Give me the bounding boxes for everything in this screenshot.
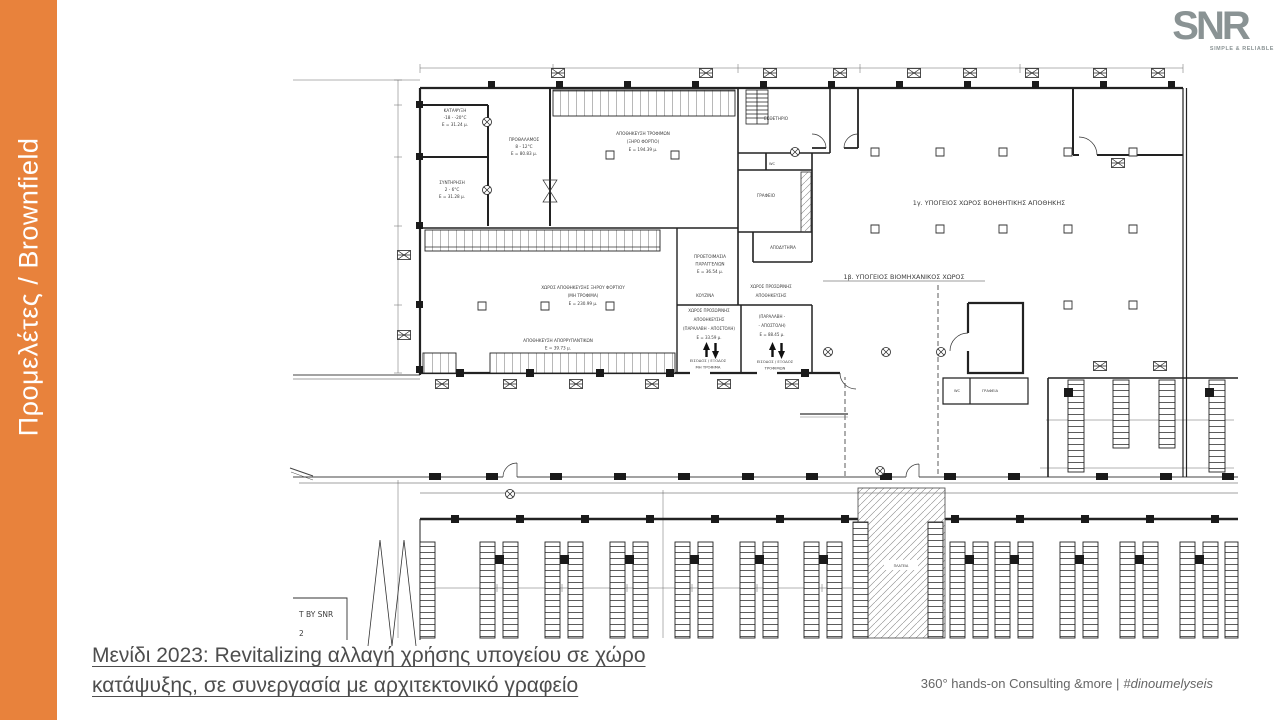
plan-label-eisodos-mi-trofima: ΕΙΣΟΔΟΣ / ΕΞΟΔΟΣ: [690, 358, 727, 363]
plan-label-grafeia: ΓΡΑΦΕΙΑ: [982, 388, 999, 393]
logo-tagline: SIMPLE & RELIABLE: [1210, 46, 1274, 52]
slide: Προμελέτες / Brownfield SNR SIMPLE & REL…: [0, 0, 1280, 720]
plan-label-apothikefsi-trofimon: (ΞΗΡΟ ΦΟΡΤΙΟ): [627, 139, 660, 144]
caption-line-2: κατάψυξης, σε συνεργασία με αρχιτεκτονικ…: [92, 672, 772, 700]
plan-label-apothikefsi-trofimon: ΑΠΟΘΗΚΕΥΣΗ ΤΡΟΦΙΜΩΝ: [616, 131, 670, 136]
plan-label-paralavi-apostoli-b: - ΑΠΟΣΤΟΛΗ): [758, 323, 785, 328]
snr-logo: SNR SIMPLE & RELIABLE: [1146, 4, 1278, 58]
plan-hatched-wall: [801, 172, 811, 232]
plan-label-xiro-fortio: Ε = 230.99 μ.: [569, 301, 598, 306]
plan-label-apodytiria: ΑΠΟΔΥΤΗΡΙΑ: [770, 245, 796, 250]
plan-label-grafeio: ΓΡΑΦΕΙΟ: [757, 193, 776, 198]
plan-label-aporripantika: ΑΠΟΘΗΚΕΥΣΗ ΑΠΟΡΡΥΠΑΝΤΙΚΩΝ: [523, 338, 593, 343]
plan-label-xoros-prosorinis-b: ΧΩΡΟΣ ΠΡΟΣΩΡΙΝΗΣ: [750, 284, 792, 289]
plan-label-eisodos-trofimon: ΕΙΣΟΔΟΣ / ΕΞΟΔΟΣ: [757, 359, 794, 364]
plan-label-ektheterio: ΕΚΘΕΤΗΡΙΟ: [764, 116, 789, 121]
plan-label-xoros-prosorinis-b: ΑΠΟΘΗΚΕΥΣΗΣ: [756, 293, 787, 298]
floor-plan: ΚΑΤΑΨΥΞΗ-18 - -20°CΕ = 31.24 μ.ΣΥΝΤΗΡΗΣΗ…: [285, 55, 1240, 655]
plan-label-stamp-by-snr: T BY SNR: [298, 610, 333, 619]
plan-label-paralavi-apostoli-b: (ΠΑΡΑΛΑΒΗ -: [759, 314, 786, 319]
plan-label-eisodos-trofimon: ΤΡΟΦΙΜΩΝ: [764, 366, 786, 371]
plan-label-apothikefsi-trofimon: Ε = 194.39 μ.: [629, 147, 658, 152]
plan-label-xiro-fortio: (ΜΗ ΤΡΟΦΙΜΑ): [568, 293, 599, 298]
plan-label-katapsixi: Ε = 31.24 μ.: [442, 122, 468, 127]
plan-vertical-racks: [420, 380, 1238, 638]
plan-label-wc-lower: WC: [954, 389, 961, 393]
plan-label-xoros-prosorinis-a: (ΠΑΡΑΛΑΒΗ - ΑΠΟΣΤΟΛΗ): [683, 326, 735, 331]
caption-line-1: Μενίδι 2023: Revitalizing αλλαγή χρήσης …: [92, 642, 772, 670]
plan-label-sintirisi: Ε = 31.28 μ.: [439, 194, 465, 199]
plan-label-xoros-prosorinis-a: Ε = 33.59 μ.: [697, 335, 722, 340]
plan-label-xoros-prosorinis-a: ΑΠΟΘΗΚΕΥΣΗΣ: [694, 317, 725, 322]
sidebar-label: Προμελέτες / Brownfield: [13, 138, 44, 437]
plan-label-stamp-by-snr: 2: [299, 629, 304, 638]
plan-label-katapsixi: ΚΑΤΑΨΥΞΗ: [444, 108, 467, 113]
plan-label-proetoimasia: Ε = 36.54 μ.: [697, 269, 723, 274]
plan-label-xiro-fortio: ΧΩΡΟΣ ΑΠΟΘΗΚΕΥΣΗΣ ΞΗΡΟΥ ΦΟΡΤΙΟΥ: [541, 285, 625, 290]
floor-plan-drawing: ΚΑΤΑΨΥΞΗ-18 - -20°CΕ = 31.24 μ.ΣΥΝΤΗΡΗΣΗ…: [285, 55, 1240, 655]
plan-label-zone-1g: 1γ. ΥΠΟΓΕΙΟΣ ΧΩΡΟΣ ΒΟΗΘΗΤΙΚΗΣ ΑΠΟΘΗΚΗΣ: [913, 199, 1065, 207]
plan-label-prothalamos: ΠΡΟΘΑΛΑΜΟΣ: [509, 137, 540, 142]
plan-wall-openings: [503, 369, 919, 481]
plan-label-eisodos-mi-trofima: ΜΗ ΤΡΟΦΙΜΑ: [696, 365, 721, 370]
plan-tiny-note: [800, 414, 848, 417]
slide-caption: Μενίδι 2023: Revitalizing αλλαγή χρήσης …: [92, 642, 772, 702]
plan-label-sintirisi: ΣΥΝΤΗΡΗΣΗ: [439, 180, 465, 185]
plan-label-katapsixi: -18 - -20°C: [444, 115, 467, 120]
plan-ramp: [368, 540, 416, 646]
plan-label-sintirisi: 2 - 6°C: [445, 187, 460, 192]
plan-label-zone-1b: 1β. ΥΠΟΓΕΙΟΣ ΒΙΟΜΗΧΑΝΙΚΟΣ ΧΩΡΟΣ: [843, 273, 964, 281]
plan-label-prothalamos: 8 - 12°C: [515, 144, 532, 149]
plan-label-paralavi-apostoli-b: Ε = 88.45 μ.: [760, 332, 785, 337]
plan-label-wc-upper: WC: [769, 162, 776, 166]
plan-label-prothalamos: Ε = 80.83 μ.: [511, 151, 537, 156]
plan-label-aporripantika: Ε = 39.73 μ.: [545, 346, 571, 351]
footer-tagline: 360° hands-on Consulting &more |#dinoume…: [921, 676, 1213, 691]
plan-entry-arrows: [703, 342, 785, 359]
logo-text: SNR: [1172, 4, 1251, 48]
plan-label-proetoimasia: ΠΡΟΕΤΟΙΜΑΣΙΑ: [694, 254, 726, 259]
plan-label-plateia: ΠΛΑΤΕΙΑ: [894, 564, 909, 568]
plan-label-kouzina: ΚΟΥΖΙΝΑ: [696, 293, 714, 298]
plan-label-proetoimasia: ΠΑΡΑΓΓΕΛΙΩΝ: [695, 262, 724, 267]
footer-hashtag: #dinoumelyseis: [1123, 676, 1213, 691]
footer-text: 360° hands-on Consulting &more |: [921, 676, 1120, 691]
sidebar: Προμελέτες / Brownfield: [0, 0, 57, 720]
plan-dashed-boundaries: [845, 285, 938, 477]
plan-label-xoros-prosorinis-a: ΧΩΡΟΣ ΠΡΟΣΩΡΙΝΗΣ: [688, 308, 730, 313]
